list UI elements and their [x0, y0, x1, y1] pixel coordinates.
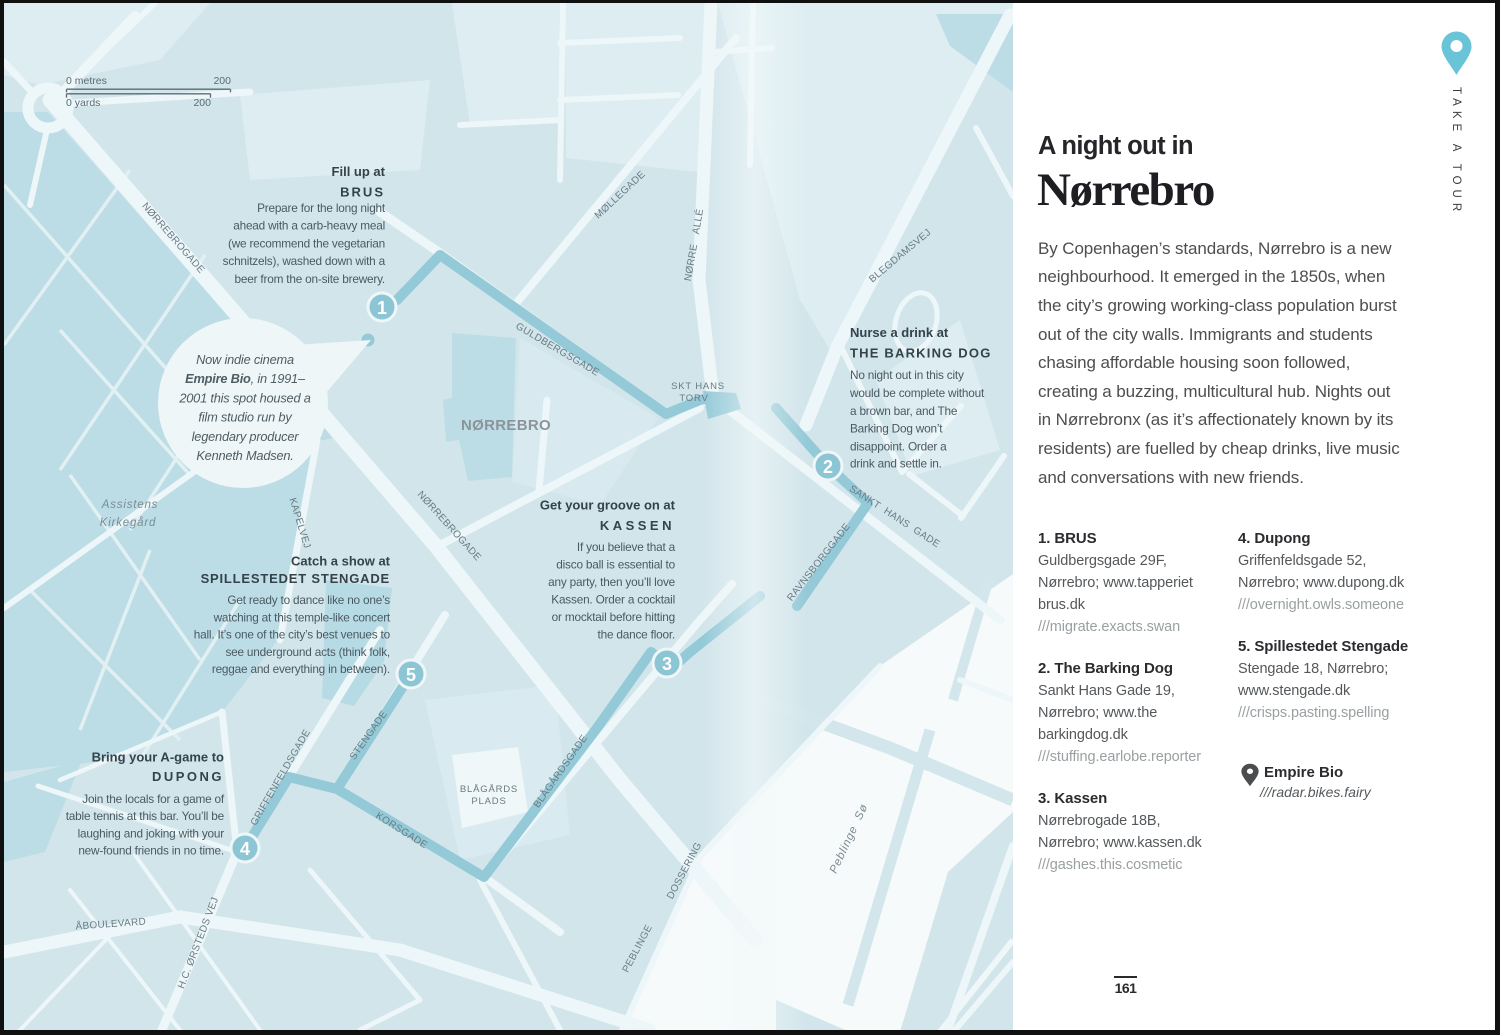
svg-text:laughing and joking with your: laughing and joking with your — [78, 826, 225, 840]
svg-text:DUPONG: DUPONG — [152, 769, 224, 784]
svg-text:If you believe that a: If you believe that a — [577, 540, 676, 554]
svg-text:watching at this temple-like c: watching at this temple-like concert — [213, 610, 391, 624]
svg-text:disappoint. Order a: disappoint. Order a — [850, 439, 947, 453]
svg-text:Kenneth Madsen.: Kenneth Madsen. — [196, 448, 293, 463]
svg-text:3: 3 — [662, 654, 672, 674]
svg-text:legendary producer: legendary producer — [192, 429, 300, 444]
svg-text:table tennis at this bar. You’: table tennis at this bar. You’ll be — [66, 809, 225, 823]
svg-text:4: 4 — [240, 839, 250, 859]
svg-text:the dance floor.: the dance floor. — [598, 628, 675, 642]
svg-text:1: 1 — [377, 298, 387, 318]
svg-text:drink and settle in.: drink and settle in. — [850, 457, 942, 471]
svg-text:disco ball is essential to: disco ball is essential to — [556, 558, 675, 572]
svg-text:2001 this spot housed a: 2001 this spot housed a — [178, 390, 310, 405]
svg-text:SPILLESTEDET STENGADE: SPILLESTEDET STENGADE — [201, 571, 390, 586]
svg-text:a brown bar, and The: a brown bar, and The — [850, 404, 958, 418]
svg-text:No night out in this city: No night out in this city — [850, 368, 964, 382]
svg-text:Get your groove on at: Get your groove on at — [540, 498, 676, 513]
svg-text:hall. It’s one of the city’s b: hall. It’s one of the city’s best venues… — [194, 628, 391, 642]
svg-text:see underground acts (think fo: see underground acts (think folk, — [225, 645, 390, 659]
svg-text:film studio run by: film studio run by — [198, 410, 293, 425]
svg-text:Fill up at: Fill up at — [332, 164, 386, 179]
svg-text:Prepare for the long night: Prepare for the long night — [257, 201, 386, 215]
svg-text:schnitzels), washed down with: schnitzels), washed down with a — [223, 254, 386, 268]
svg-text:beer from the on-site brewery.: beer from the on-site brewery. — [235, 272, 385, 286]
svg-text:5: 5 — [406, 665, 416, 685]
svg-text:TORV: TORV — [679, 393, 708, 404]
svg-text:NØRREBRO: NØRREBRO — [461, 417, 551, 434]
svg-text:KASSEN: KASSEN — [600, 518, 675, 533]
svg-text:SKT HANS: SKT HANS — [671, 381, 725, 392]
svg-text:would be complete without: would be complete without — [849, 386, 985, 400]
svg-text:2: 2 — [823, 457, 833, 477]
svg-text:Kirkegård: Kirkegård — [100, 517, 156, 529]
svg-text:200: 200 — [213, 75, 231, 87]
svg-text:Now indie cinema: Now indie cinema — [196, 352, 294, 367]
svg-text:Empire Bio, in 1991–: Empire Bio, in 1991– — [185, 371, 306, 386]
svg-text:Join the locals for a game of: Join the locals for a game of — [82, 792, 225, 806]
svg-text:new-found friends in no time.: new-found friends in no time. — [78, 843, 224, 857]
svg-text:Get ready to dance like no one: Get ready to dance like no one’s — [227, 593, 390, 607]
svg-text:0 yards: 0 yards — [66, 97, 100, 109]
svg-text:reggae and everything in betwe: reggae and everything in between). — [212, 662, 390, 676]
svg-text:PLADS: PLADS — [471, 796, 506, 807]
svg-text:Nurse a drink at: Nurse a drink at — [850, 325, 949, 340]
svg-text:Assistens: Assistens — [101, 499, 158, 511]
svg-text:any party, then you’ll love: any party, then you’ll love — [548, 575, 675, 589]
svg-text:200: 200 — [193, 97, 211, 109]
svg-text:or mocktail before hitting: or mocktail before hitting — [552, 610, 675, 624]
svg-text:Bring your A-game to: Bring your A-game to — [92, 750, 224, 765]
svg-text:Barking Dog won’t: Barking Dog won’t — [850, 421, 943, 435]
svg-text:BLÅGÅRDS: BLÅGÅRDS — [460, 784, 518, 795]
svg-text:Kassen. Order a cocktail: Kassen. Order a cocktail — [551, 593, 675, 607]
svg-text:(we recommend the vegetarian: (we recommend the vegetarian — [228, 236, 385, 250]
svg-text:Catch a show at: Catch a show at — [291, 554, 391, 569]
svg-text:BRUS: BRUS — [340, 185, 385, 200]
svg-text:ahead with a carb-heavy meal: ahead with a carb-heavy meal — [233, 219, 385, 233]
svg-text:0 metres: 0 metres — [66, 75, 107, 87]
svg-text:THE BARKING DOG: THE BARKING DOG — [850, 346, 992, 361]
